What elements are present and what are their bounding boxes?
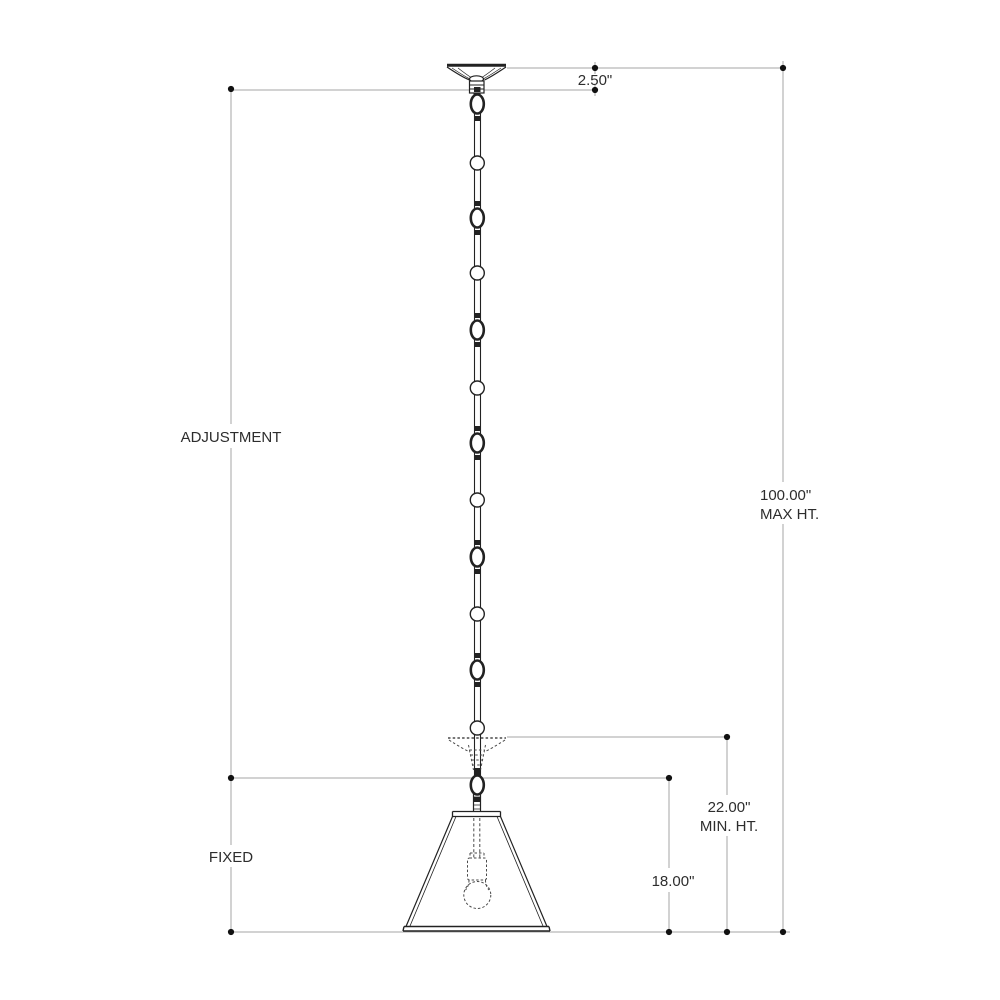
- light-bulb-hidden: [464, 880, 491, 909]
- chain-ball: [470, 156, 484, 170]
- dimension-endpoint-dot: [724, 929, 730, 935]
- chain-ball: [470, 266, 484, 280]
- chain-link-cap: [474, 569, 481, 574]
- chain-link-cap: [474, 230, 481, 235]
- dimension-endpoint-dot: [666, 929, 672, 935]
- alternate-canopy-min-height: [448, 738, 506, 770]
- drawing-canvas: 2.50" ADJUSTMENT FIXED 100.00" MAX HT. 2…: [0, 0, 1000, 1000]
- label-fixed: FIXED: [209, 849, 253, 866]
- dim-max-height-label: MAX HT.: [760, 506, 819, 523]
- dimension-endpoint-dots: [228, 65, 786, 935]
- dim-min-height-value: 22.00": [708, 799, 751, 816]
- cone-shade: [403, 812, 550, 932]
- drawing-sheet: 2.50" ADJUSTMENT FIXED 100.00" MAX HT. 2…: [0, 0, 1000, 1000]
- chain-oval-link: [471, 321, 484, 340]
- chain-link-cap: [474, 455, 481, 460]
- chain-link-cap: [474, 116, 481, 121]
- dim-max-height-value: 100.00": [760, 487, 811, 504]
- chain-oval-link: [471, 95, 484, 114]
- dimension-endpoint-dot: [228, 929, 234, 935]
- tick-overshoots: [595, 61, 783, 96]
- adjustable-chain: [470, 87, 484, 802]
- chain-links: [470, 87, 484, 802]
- chain-ball: [470, 721, 484, 735]
- annotations: 2.50" ADJUSTMENT FIXED 100.00" MAX HT. 2…: [181, 72, 820, 890]
- chain-ball: [470, 381, 484, 395]
- chain-oval-link: [471, 434, 484, 453]
- chain-link-cap: [474, 682, 481, 687]
- pendant-fixture: [403, 65, 550, 931]
- label-adjustment: ADJUSTMENT: [181, 429, 282, 446]
- ceiling-canopy: [447, 65, 506, 97]
- chain-oval-link: [471, 776, 484, 795]
- chain-ball: [470, 493, 484, 507]
- chain-link-cap: [474, 653, 481, 658]
- chain-link-cap: [474, 540, 481, 545]
- chain-oval-link: [471, 209, 484, 228]
- chain-link-cap: [474, 201, 481, 206]
- dimension-endpoint-dot: [780, 65, 786, 71]
- chain-link-cap: [474, 313, 481, 318]
- dimension-endpoint-dot: [666, 775, 672, 781]
- dim-min-height-label: MIN. HT.: [700, 818, 758, 835]
- dimension-endpoint-dot: [228, 86, 234, 92]
- chain-oval-link: [471, 661, 484, 680]
- socket-hidden: [468, 853, 487, 880]
- chain-link-cap: [474, 342, 481, 347]
- dimension-endpoint-dot: [592, 65, 598, 71]
- chain-ball: [470, 607, 484, 621]
- chain-connector: [474, 768, 481, 775]
- dimension-endpoint-dot: [724, 734, 730, 740]
- dimension-endpoint-dot: [228, 775, 234, 781]
- dimension-endpoint-dot: [780, 929, 786, 935]
- dimension-lines: [231, 61, 790, 932]
- chain-oval-link: [471, 548, 484, 567]
- chain-link-cap: [474, 426, 481, 431]
- chain-link-cap: [474, 87, 481, 92]
- dim-canopy-height: 2.50": [578, 72, 613, 89]
- stem: [474, 793, 481, 858]
- dim-fixture-height: 18.00": [652, 873, 695, 890]
